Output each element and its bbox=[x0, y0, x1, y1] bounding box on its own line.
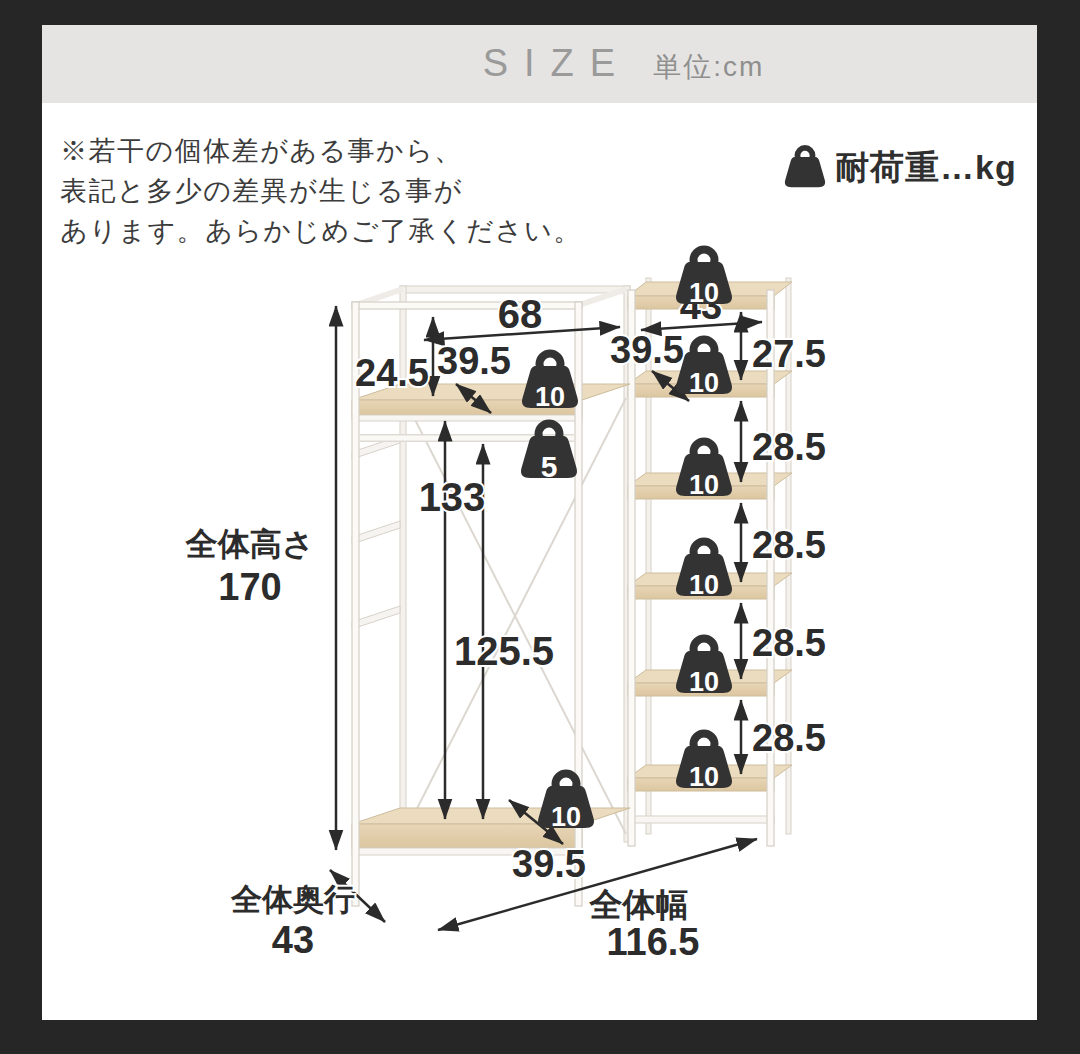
dimension-label: 全体幅 bbox=[589, 886, 689, 923]
dimension-label: 43 bbox=[272, 919, 314, 961]
dimension-label: 28.5 bbox=[752, 622, 826, 664]
dimension-label: 68 bbox=[498, 292, 543, 336]
load-badge: 10 bbox=[676, 250, 732, 309]
load-badge: 10 bbox=[676, 734, 732, 793]
dimension-label: 39.5 bbox=[437, 340, 511, 382]
load-badge: 10 bbox=[676, 639, 732, 698]
load-badge: 5 bbox=[521, 424, 577, 483]
svg-text:10: 10 bbox=[689, 762, 719, 792]
dimension-label: 24.5 bbox=[355, 352, 429, 394]
dimension-label: 39.5 bbox=[610, 329, 684, 371]
dimension-label: 全体奥行 bbox=[230, 882, 355, 917]
svg-text:10: 10 bbox=[535, 382, 565, 412]
svg-text:10: 10 bbox=[689, 570, 719, 600]
dimension-label: 116.5 bbox=[607, 921, 700, 963]
dimension-label: 27.5 bbox=[752, 333, 826, 375]
svg-text:10: 10 bbox=[689, 470, 719, 500]
dimension-label: 全体高さ bbox=[185, 526, 315, 562]
dimension-label: 170 bbox=[218, 566, 281, 608]
svg-text:10: 10 bbox=[689, 368, 719, 398]
dimension-label: 28.5 bbox=[752, 524, 826, 566]
load-badge: 10 bbox=[522, 354, 578, 413]
size-diagram-image: SIZE 単位:cm ※若干の個体差がある事から、 表記と多少の差異が生じる事が… bbox=[0, 0, 1080, 1054]
load-badge: 10 bbox=[676, 542, 732, 601]
load-badge: 10 bbox=[676, 340, 732, 399]
svg-text:10: 10 bbox=[551, 802, 581, 832]
svg-text:5: 5 bbox=[541, 450, 558, 483]
furniture-dimension-diagram: 684324.539.539.527.528.528.528.528.51331… bbox=[0, 0, 1080, 1054]
dimension-label: 133 bbox=[419, 475, 486, 519]
load-badge: 10 bbox=[676, 442, 732, 501]
svg-text:10: 10 bbox=[689, 667, 719, 697]
svg-text:10: 10 bbox=[689, 278, 719, 308]
dimension-label: 28.5 bbox=[752, 717, 826, 759]
dimension-label: 39.5 bbox=[512, 843, 586, 885]
load-badge: 10 bbox=[538, 774, 594, 833]
dimension-label: 125.5 bbox=[454, 629, 554, 673]
dimension-label: 28.5 bbox=[752, 426, 826, 468]
